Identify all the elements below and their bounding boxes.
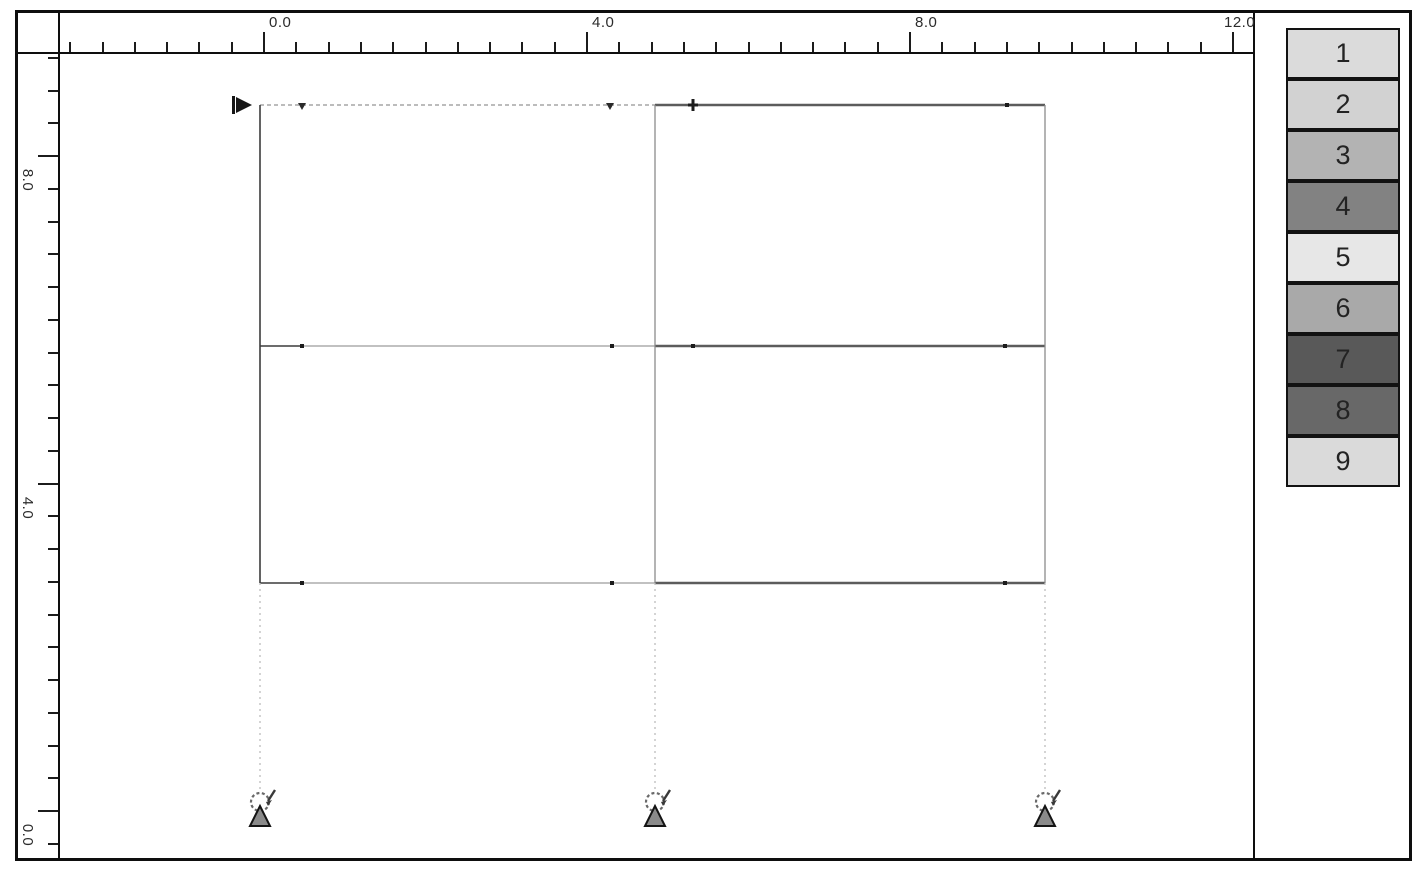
palette-item-7[interactable]: 7 [1286,334,1400,385]
h-ruler-tick [941,42,943,52]
h-ruler-tick [1200,42,1202,52]
v-ruler-tick [48,221,58,223]
node-marker[interactable] [606,103,614,110]
node-marker[interactable] [1003,344,1007,348]
palette-item-2[interactable]: 2 [1286,79,1400,130]
h-ruler-tick [425,42,427,52]
v-ruler-tick [48,417,58,419]
v-ruler-tick [48,286,58,288]
palette-item-3[interactable]: 3 [1286,130,1400,181]
v-ruler-tick [48,188,58,190]
h-ruler-tick [651,42,653,52]
node-marker[interactable] [300,344,304,348]
v-ruler-tick [48,450,58,452]
h-ruler-tick [844,42,846,52]
h-ruler-label: 4.0 [592,14,614,31]
v-ruler-tick [48,581,58,583]
v-ruler-tick [48,712,58,714]
h-ruler-tick [1006,42,1008,52]
v-ruler-tick [48,679,58,681]
h-ruler-tick [877,42,879,52]
h-ruler-tick [1038,42,1040,52]
node-marker[interactable] [298,103,306,110]
h-ruler-tick [554,42,556,52]
viewport-frame: 0.04.08.012.0 8.04.00.0 123456789 [15,10,1412,861]
h-ruler-tick [457,42,459,52]
h-ruler-tick [1167,42,1169,52]
v-ruler-tick [48,319,58,321]
node-marker[interactable] [691,344,695,348]
h-ruler-tick [748,42,750,52]
h-ruler-tick [1232,32,1234,52]
h-ruler-tick [974,42,976,52]
h-ruler-label: 0.0 [269,14,291,31]
h-ruler-label: 12.0 [1224,14,1255,31]
h-ruler-tick [69,42,71,52]
v-ruler-tick [48,548,58,550]
v-ruler-tick [48,614,58,616]
h-ruler-tick [295,42,297,52]
palette-item-8[interactable]: 8 [1286,385,1400,436]
h-ruler-tick [715,42,717,52]
v-ruler-tick [48,122,58,124]
h-ruler-tick [489,42,491,52]
node-marker[interactable] [610,344,614,348]
h-ruler-tick [231,42,233,52]
h-ruler-label: 8.0 [915,14,937,31]
h-ruler-tick [392,42,394,52]
drawing-canvas[interactable] [60,54,1253,856]
h-ruler-tick [102,42,104,52]
v-ruler-tick [48,57,58,59]
v-ruler-tick [48,843,58,845]
v-ruler-tick [48,90,58,92]
h-ruler-tick [1103,42,1105,52]
support-arrow-icon [663,790,670,801]
h-ruler-tick [360,42,362,52]
v-ruler-tick [48,384,58,386]
v-ruler-tick [38,810,58,812]
pointer-arrow-icon [232,96,235,114]
node-marker[interactable] [1005,103,1009,107]
h-ruler-tick [521,42,523,52]
v-ruler-tick [48,515,58,517]
v-ruler-tick [48,777,58,779]
node-marker[interactable] [300,581,304,585]
palette-item-6[interactable]: 6 [1286,283,1400,334]
h-ruler-tick [586,32,588,52]
h-ruler-tick [909,32,911,52]
layer-palette: 123456789 [1286,28,1396,487]
v-ruler-tick [48,646,58,648]
h-ruler-tick [780,42,782,52]
h-ruler-tick [1135,42,1137,52]
pointer-arrow-icon [236,97,252,113]
node-marker[interactable] [688,104,698,107]
v-ruler-tick [38,155,58,157]
h-ruler-tick [812,42,814,52]
palette-item-5[interactable]: 5 [1286,232,1400,283]
v-ruler-tick [48,745,58,747]
v-ruler-tick [38,483,58,485]
h-ruler-tick [683,42,685,52]
v-ruler-tick [48,352,58,354]
node-marker[interactable] [610,581,614,585]
h-ruler-tick [618,42,620,52]
palette-item-9[interactable]: 9 [1286,436,1400,487]
h-ruler-tick [166,42,168,52]
h-ruler-tick [263,32,265,52]
panel-divider [1253,13,1255,858]
palette-item-1[interactable]: 1 [1286,28,1400,79]
h-ruler-tick [134,42,136,52]
support-arrow-icon [268,790,275,801]
support-arrow-icon [1053,790,1060,801]
h-ruler-tick [198,42,200,52]
v-ruler-label: 8.0 [20,162,36,198]
node-marker[interactable] [1003,581,1007,585]
palette-item-4[interactable]: 4 [1286,181,1400,232]
v-ruler-label: 0.0 [20,817,36,853]
h-ruler-tick [1071,42,1073,52]
h-ruler-tick [328,42,330,52]
v-ruler-label: 4.0 [20,490,36,526]
v-ruler-tick [48,253,58,255]
